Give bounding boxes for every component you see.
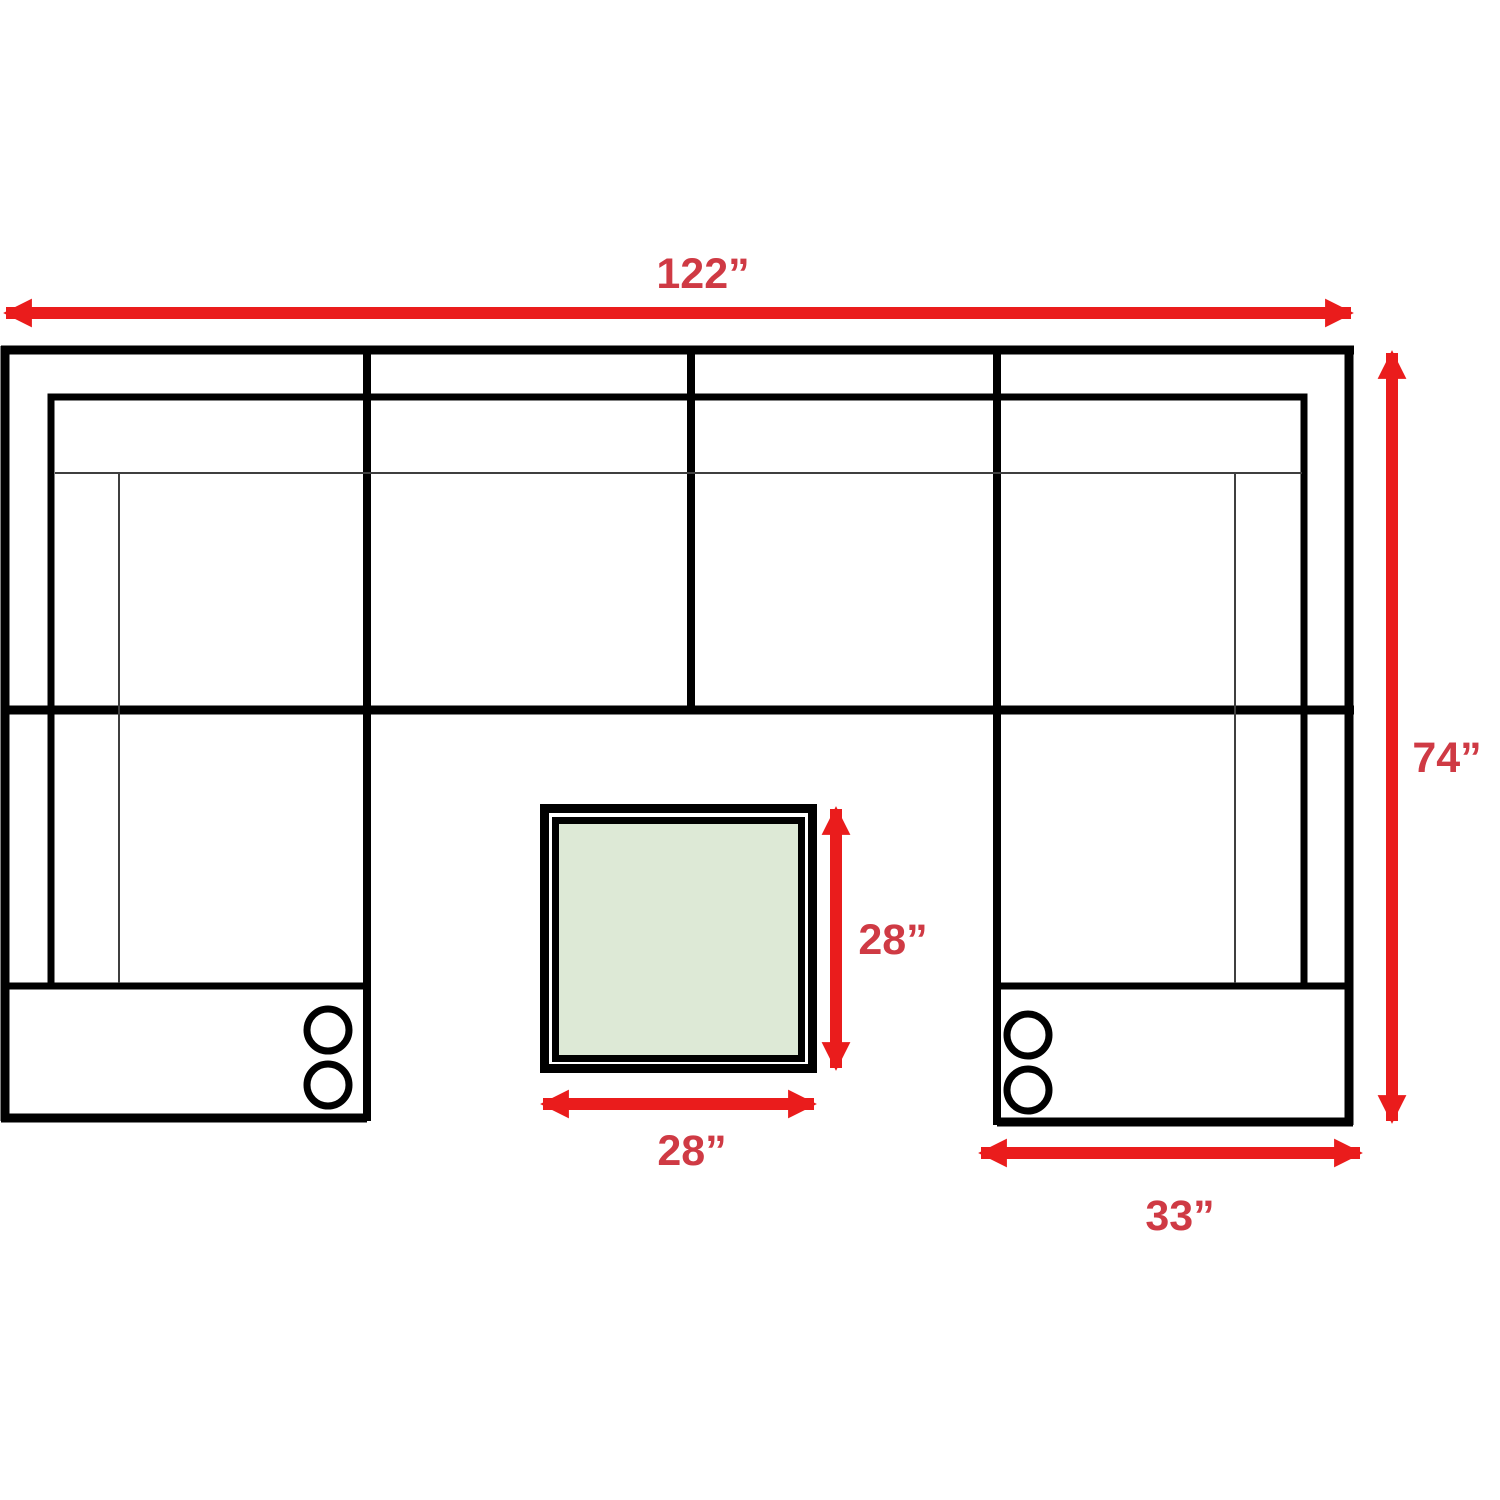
cupholder-icon <box>307 1064 349 1106</box>
ottoman <box>545 809 813 1069</box>
cupholder-icon <box>1007 1014 1049 1056</box>
ottoman-top <box>556 821 802 1059</box>
dim-label-overall-width: 122” <box>656 250 749 298</box>
sofa-dimension-diagram: 122” 74” 28” 28” 33” <box>0 0 1500 1500</box>
dim-label-overall-depth: 74” <box>1412 734 1481 782</box>
dim-label-ottoman-depth: 28” <box>858 916 927 964</box>
dim-label-ottoman-width: 28” <box>657 1127 726 1175</box>
dim-label-console-width: 33” <box>1145 1192 1214 1240</box>
cupholder-icon <box>307 1009 349 1051</box>
cupholder-icon <box>1007 1069 1049 1111</box>
diagram-svg: 122” 74” 28” 28” 33” <box>0 0 1500 1500</box>
